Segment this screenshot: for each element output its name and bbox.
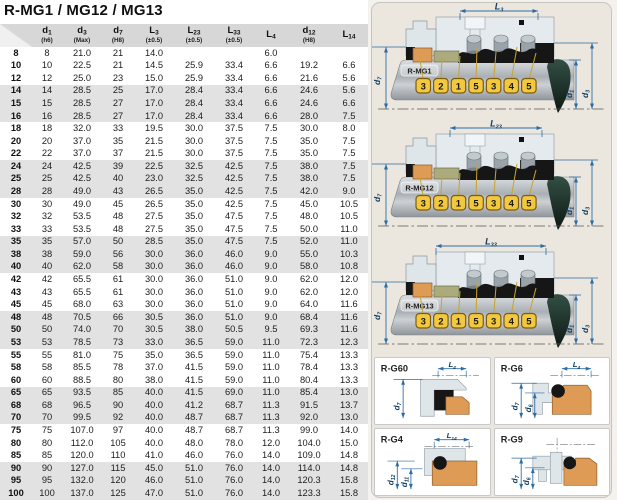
value-cell: 76.0 <box>214 462 254 475</box>
value-cell: 24.6 <box>288 97 330 110</box>
value-cell: 61 <box>102 286 134 299</box>
value-cell: 78 <box>102 361 134 374</box>
svg-text:L4: L4 <box>448 360 456 371</box>
value-cell: 75 <box>32 424 62 437</box>
table-row: 121225.02315.025.933.46.621.65.6 <box>0 72 368 85</box>
size-cell: 65 <box>0 387 32 400</box>
size-cell: 16 <box>0 110 32 123</box>
size-cell: 80 <box>0 437 32 450</box>
table-row: 424265.56130.036.051.09.062.012.0 <box>0 273 368 286</box>
size-cell: 28 <box>0 185 32 198</box>
size-cell: 24 <box>0 160 32 173</box>
svg-text:L4: L4 <box>572 360 580 371</box>
value-cell: 63 <box>102 299 134 312</box>
value-cell: 11.6 <box>330 324 368 337</box>
value-cell: 35.0 <box>174 198 214 211</box>
value-cell: 59.0 <box>214 374 254 387</box>
value-cell: 61 <box>102 273 134 286</box>
value-cell: 58.0 <box>288 261 330 274</box>
value-cell: 62.0 <box>62 261 102 274</box>
value-cell: 107.0 <box>62 424 102 437</box>
size-cell: 42 <box>0 273 32 286</box>
value-cell: 25 <box>102 85 134 98</box>
value-cell: 125 <box>102 487 134 500</box>
value-cell: 11.3 <box>254 424 288 437</box>
value-cell: 85 <box>102 387 134 400</box>
value-cell: 11.3 <box>254 399 288 412</box>
header-cell-d1: d1(h6) <box>32 24 62 47</box>
value-cell: 9.5 <box>254 324 288 337</box>
value-cell: 21 <box>102 47 134 60</box>
size-cell: 53 <box>0 336 32 349</box>
value-cell: 51.0 <box>214 311 254 324</box>
table-row: 151528.52717.028.433.46.624.66.6 <box>0 97 368 110</box>
value-cell: 55 <box>32 349 62 362</box>
value-cell: 62.0 <box>288 273 330 286</box>
value-cell: 7.5 <box>254 223 288 236</box>
diagram-r-g60: L4d7R-G60 <box>374 357 491 425</box>
value-cell: 41.5 <box>174 374 214 387</box>
table-row: 7575107.09740.048.768.711.399.014.0 <box>0 424 368 437</box>
value-cell: 97 <box>102 424 134 437</box>
size-cell: 55 <box>0 349 32 362</box>
svg-text:R-G6: R-G6 <box>500 364 522 374</box>
svg-text:3: 3 <box>421 317 426 328</box>
value-cell: 37.0 <box>134 361 174 374</box>
svg-text:L3: L3 <box>495 3 505 13</box>
table-row: 686896.59040.041.268.711.391.513.7 <box>0 399 368 412</box>
value-cell: 39 <box>102 160 134 173</box>
value-cell: 65.5 <box>62 286 102 299</box>
table-row: 454568.06330.036.051.09.064.011.6 <box>0 299 368 312</box>
svg-text:2: 2 <box>438 199 443 210</box>
value-cell: 9.0 <box>254 299 288 312</box>
size-cell: 40 <box>0 261 32 274</box>
value-cell: 45.0 <box>288 198 330 211</box>
value-cell: 28.5 <box>62 85 102 98</box>
table-row: 484870.56630.536.051.09.068.411.6 <box>0 311 368 324</box>
value-cell: 7.5 <box>254 185 288 198</box>
value-cell: 33.0 <box>134 336 174 349</box>
value-cell: 36.0 <box>174 299 214 312</box>
svg-text:d3: d3 <box>580 207 592 215</box>
value-cell: 59.0 <box>62 248 102 261</box>
value-cell: 65.5 <box>62 273 102 286</box>
value-cell: 11.0 <box>254 387 288 400</box>
spec-table-header: d1(h6)d3(Max)d7(H8)L3(±0.5)L23(±0.5)L33(… <box>0 24 368 47</box>
value-cell: 22.5 <box>62 60 102 73</box>
spec-table-body: 8821.02114.06.0101022.52114.525.933.46.6… <box>0 47 368 500</box>
table-row: 707099.59240.048.768.711.392.013.0 <box>0 412 368 425</box>
size-cell: 38 <box>0 248 32 261</box>
value-cell: 43 <box>102 185 134 198</box>
value-cell: 45 <box>102 198 134 211</box>
value-cell: 57.0 <box>62 236 102 249</box>
value-cell: 37.5 <box>214 122 254 135</box>
table-row: 323253.54827.535.047.57.548.010.5 <box>0 211 368 224</box>
value-cell: 58 <box>32 361 62 374</box>
value-cell: 11.6 <box>330 311 368 324</box>
svg-text:R-MG13: R-MG13 <box>405 302 433 311</box>
value-cell: 40.0 <box>134 399 174 412</box>
value-cell: 30.0 <box>134 248 174 261</box>
value-cell: 110 <box>102 450 134 463</box>
value-cell: 78.5 <box>62 336 102 349</box>
value-cell: 47.5 <box>214 236 254 249</box>
value-cell: 90 <box>32 462 62 475</box>
table-row: 161628.52717.028.433.46.628.07.5 <box>0 110 368 123</box>
value-cell: 30.0 <box>134 273 174 286</box>
value-cell: 13.0 <box>330 387 368 400</box>
value-cell: 120.0 <box>62 450 102 463</box>
value-cell: 35.0 <box>288 148 330 161</box>
value-cell: 6.6 <box>254 72 288 85</box>
value-cell: 40 <box>102 173 134 186</box>
table-row: 656593.58540.041.569.011.085.413.0 <box>0 387 368 400</box>
value-cell: 17.0 <box>134 85 174 98</box>
value-cell: 28.4 <box>174 85 214 98</box>
value-cell: 47.5 <box>214 211 254 224</box>
header-cell-d7: d7(H8) <box>102 24 134 47</box>
value-cell: 41.5 <box>174 387 214 400</box>
svg-text:d7: d7 <box>372 311 384 320</box>
value-cell: 127.0 <box>62 462 102 475</box>
value-cell: 33.4 <box>214 72 254 85</box>
value-cell: 9.0 <box>254 261 288 274</box>
value-cell: 28.4 <box>174 97 214 110</box>
value-cell: 7.5 <box>330 160 368 173</box>
size-cell: 70 <box>0 412 32 425</box>
table-row: 434365.56130.036.051.09.062.012.0 <box>0 286 368 299</box>
table-row: 141428.52517.028.433.46.624.65.6 <box>0 85 368 98</box>
header-cell-L3: L3(±0.5) <box>134 24 174 47</box>
value-cell: 7.5 <box>330 173 368 186</box>
value-cell: 7.5 <box>254 236 288 249</box>
value-cell: 9.0 <box>254 311 288 324</box>
value-cell: 11.0 <box>254 361 288 374</box>
value-cell: 21.5 <box>134 135 174 148</box>
table-row: 353557.05028.535.047.57.552.011.0 <box>0 236 368 249</box>
value-cell: 75 <box>102 349 134 362</box>
value-cell: 36.0 <box>174 248 214 261</box>
value-cell: 70.5 <box>62 311 102 324</box>
value-cell: 19.5 <box>134 122 174 135</box>
value-cell: 47.5 <box>214 223 254 236</box>
table-row: 100100137.012547.051.076.014.0123.315.8 <box>0 487 368 500</box>
svg-text:R-G60: R-G60 <box>381 364 408 374</box>
value-cell: 26.5 <box>134 198 174 211</box>
value-cell: 51.0 <box>174 475 214 488</box>
size-cell: 68 <box>0 399 32 412</box>
value-cell: 109.0 <box>288 450 330 463</box>
value-cell: 69.0 <box>214 387 254 400</box>
value-cell: 51.0 <box>214 286 254 299</box>
value-cell: 53.5 <box>62 223 102 236</box>
svg-text:3: 3 <box>491 82 496 93</box>
value-cell: 48.7 <box>174 424 214 437</box>
value-cell: 80 <box>32 437 62 450</box>
value-cell: 68.7 <box>214 412 254 425</box>
value-cell: 21.6 <box>288 72 330 85</box>
value-cell: 41.5 <box>174 361 214 374</box>
svg-text:R-MG1: R-MG1 <box>407 67 431 76</box>
table-row: 202037.03521.530.037.57.535.07.5 <box>0 135 368 148</box>
value-cell: 48 <box>32 311 62 324</box>
value-cell: 21.5 <box>134 148 174 161</box>
value-cell: 19.2 <box>288 60 330 73</box>
value-cell: 32.0 <box>62 122 102 135</box>
value-cell: 40.0 <box>134 387 174 400</box>
value-cell: 30.0 <box>134 299 174 312</box>
value-cell: 6.6 <box>254 60 288 73</box>
value-cell: 68.0 <box>62 299 102 312</box>
value-cell: 36.0 <box>174 286 214 299</box>
header-cell-d12: d12(H8) <box>288 24 330 47</box>
table-row: 535378.57333.036.559.011.072.312.3 <box>0 336 368 349</box>
value-cell: 60 <box>32 374 62 387</box>
value-cell: 7.5 <box>254 135 288 148</box>
value-cell: 16 <box>32 110 62 123</box>
value-cell: 123.3 <box>288 487 330 500</box>
value-cell: 51.0 <box>214 299 254 312</box>
value-cell: 9.0 <box>254 273 288 286</box>
value-cell: 14.0 <box>254 475 288 488</box>
value-cell: 12 <box>32 72 62 85</box>
size-cell: 85 <box>0 450 32 463</box>
value-cell: 7.5 <box>254 198 288 211</box>
value-cell: 28.4 <box>174 110 214 123</box>
value-cell: 13.0 <box>330 412 368 425</box>
value-cell: 49.0 <box>62 185 102 198</box>
size-cell: 8 <box>0 47 32 60</box>
size-cell: 14 <box>0 85 32 98</box>
value-cell: 7.5 <box>330 148 368 161</box>
value-cell: 64.0 <box>288 299 330 312</box>
value-cell: 37.5 <box>214 135 254 148</box>
diagram-r-mg1: R-MG1 3 2 1 5 3 4 5 L3d7d1d3 <box>370 3 614 119</box>
header-cell-d3: d3(Max) <box>62 24 102 47</box>
value-cell: 42.5 <box>214 185 254 198</box>
size-cell: 18 <box>0 122 32 135</box>
value-cell: 48 <box>102 223 134 236</box>
size-cell: 75 <box>0 424 32 437</box>
value-cell: 35.0 <box>174 223 214 236</box>
svg-text:d3: d3 <box>580 90 592 98</box>
header-cell-L4: L4 <box>254 24 288 47</box>
size-cell: 33 <box>0 223 32 236</box>
seat-diagrams-grid: L4d7R-G60 L4d7d6R-G6 L14d12d11R-G4 d7d6R… <box>374 357 610 496</box>
svg-text:2: 2 <box>438 82 443 93</box>
svg-text:d12: d12 <box>386 474 397 485</box>
value-cell: 76.0 <box>214 487 254 500</box>
value-cell: 26.5 <box>134 185 174 198</box>
table-row: 333353.54827.535.047.57.550.011.0 <box>0 223 368 236</box>
value-cell: 105 <box>102 437 134 450</box>
value-cell: 50 <box>102 236 134 249</box>
value-cell: 42.5 <box>214 160 254 173</box>
svg-text:3: 3 <box>491 199 496 210</box>
value-cell: 17.0 <box>134 97 174 110</box>
value-cell: 38.0 <box>288 173 330 186</box>
size-cell: 10 <box>0 60 32 73</box>
value-cell: 100 <box>32 487 62 500</box>
table-row: 555581.07535.036.559.011.075.413.3 <box>0 349 368 362</box>
value-cell: 30 <box>32 198 62 211</box>
size-cell: 22 <box>0 148 32 161</box>
value-cell: 37.0 <box>62 135 102 148</box>
value-cell: 9.0 <box>330 185 368 198</box>
svg-text:5: 5 <box>473 82 479 93</box>
value-cell: 59.0 <box>214 349 254 362</box>
size-cell: 48 <box>0 311 32 324</box>
value-cell: 38.0 <box>174 324 214 337</box>
table-row: 242442.53922.532.542.57.538.07.5 <box>0 160 368 173</box>
table-row: 8821.02114.06.0 <box>0 47 368 60</box>
table-row: 9090127.011545.051.076.014.0114.014.8 <box>0 462 368 475</box>
svg-text:R-G4: R-G4 <box>381 435 404 445</box>
value-cell: 12.0 <box>330 286 368 299</box>
svg-text:4: 4 <box>509 199 515 210</box>
value-cell: 88.5 <box>62 374 102 387</box>
value-cell: 33.4 <box>214 60 254 73</box>
value-cell: 49.0 <box>62 198 102 211</box>
value-cell: 12.3 <box>330 336 368 349</box>
value-cell: 14.0 <box>134 47 174 60</box>
size-cell: 30 <box>0 198 32 211</box>
svg-text:5: 5 <box>473 317 479 328</box>
value-cell: 92 <box>102 412 134 425</box>
value-cell: 42.5 <box>214 198 254 211</box>
value-cell: 14.0 <box>254 450 288 463</box>
value-cell: 76.0 <box>214 475 254 488</box>
value-cell: 14.0 <box>330 424 368 437</box>
svg-text:R-G9: R-G9 <box>500 435 522 445</box>
value-cell: 35.0 <box>288 135 330 148</box>
page-title: R-MG1 / MG12 / MG13 <box>4 2 163 19</box>
svg-text:4: 4 <box>509 317 515 328</box>
value-cell: 59.0 <box>214 361 254 374</box>
value-cell: 115 <box>102 462 134 475</box>
value-cell: 30.0 <box>174 148 214 161</box>
value-cell: 53.5 <box>62 211 102 224</box>
value-cell: 92.0 <box>288 412 330 425</box>
value-cell: 14.0 <box>254 487 288 500</box>
value-cell: 38.0 <box>288 160 330 173</box>
diagram-panel: R-MG1 3 2 1 5 3 4 5 L3d7d1d3 <box>368 0 617 500</box>
value-cell <box>288 47 330 60</box>
value-cell: 45 <box>32 299 62 312</box>
value-cell: 35.0 <box>134 349 174 362</box>
value-cell: 48.0 <box>174 437 214 450</box>
value-cell: 7.5 <box>330 110 368 123</box>
value-cell: 8.0 <box>330 122 368 135</box>
table-row: 505074.07030.538.050.59.569.311.6 <box>0 324 368 337</box>
value-cell: 14.8 <box>330 450 368 463</box>
table-row: 383859.05630.036.046.09.055.010.3 <box>0 248 368 261</box>
value-cell: 48.7 <box>174 412 214 425</box>
value-cell: 15.0 <box>134 72 174 85</box>
value-cell: 7.5 <box>330 135 368 148</box>
value-cell: 25.9 <box>174 60 214 73</box>
value-cell: 27.5 <box>134 211 174 224</box>
value-cell: 132.0 <box>62 475 102 488</box>
value-cell: 96.5 <box>62 399 102 412</box>
svg-text:5: 5 <box>526 82 532 93</box>
value-cell: 46.0 <box>134 475 174 488</box>
value-cell: 36.0 <box>174 261 214 274</box>
table-row: 585885.57837.041.559.011.078.413.3 <box>0 361 368 374</box>
table-row: 9595132.012046.051.076.014.0120.315.8 <box>0 475 368 488</box>
svg-text:1: 1 <box>456 317 462 328</box>
svg-text:d7: d7 <box>392 401 403 410</box>
value-cell: 40.0 <box>134 437 174 450</box>
value-cell: 30.0 <box>174 135 214 148</box>
value-cell: 50.0 <box>288 223 330 236</box>
value-cell: 28 <box>32 185 62 198</box>
value-cell: 95 <box>32 475 62 488</box>
value-cell: 7.5 <box>254 211 288 224</box>
value-cell: 76.0 <box>214 450 254 463</box>
diagram-r-mg13: R-MG13 3 2 1 5 3 4 5 L33d7d1d3 <box>370 238 614 354</box>
value-cell <box>330 47 368 60</box>
value-cell: 21 <box>102 60 134 73</box>
value-cell: 30.0 <box>174 122 214 135</box>
value-cell: 42.5 <box>62 160 102 173</box>
value-cell: 40.0 <box>134 424 174 437</box>
value-cell: 93.5 <box>62 387 102 400</box>
header-cell-L33: L33(±0.5) <box>214 24 254 47</box>
value-cell: 12.0 <box>330 273 368 286</box>
value-cell: 25.0 <box>62 72 102 85</box>
size-cell: 35 <box>0 236 32 249</box>
value-cell: 30.5 <box>134 311 174 324</box>
value-cell: 11.0 <box>330 236 368 249</box>
table-row: 282849.04326.535.042.57.542.09.0 <box>0 185 368 198</box>
value-cell: 33 <box>102 122 134 135</box>
value-cell: 32.5 <box>174 173 214 186</box>
svg-text:2: 2 <box>438 317 443 328</box>
value-cell: 7.5 <box>254 173 288 186</box>
svg-text:5: 5 <box>526 317 532 328</box>
value-cell: 40 <box>32 261 62 274</box>
value-cell: 112.0 <box>62 437 102 450</box>
value-cell: 12.0 <box>254 437 288 450</box>
value-cell: 91.5 <box>288 399 330 412</box>
value-cell: 20 <box>32 135 62 148</box>
value-cell: 14 <box>32 85 62 98</box>
value-cell: 47.0 <box>134 487 174 500</box>
value-cell: 38 <box>32 248 62 261</box>
value-cell: 6.0 <box>254 47 288 60</box>
value-cell: 35 <box>102 135 134 148</box>
value-cell: 58 <box>102 261 134 274</box>
catalog-page: R-MG1 / MG12 / MG13 d1(h6)d3(Max)d7(H8)L… <box>0 0 617 500</box>
value-cell: 56 <box>102 248 134 261</box>
value-cell: 10.3 <box>330 248 368 261</box>
value-cell: 30.0 <box>134 261 174 274</box>
value-cell: 70 <box>32 412 62 425</box>
size-cell: 100 <box>0 487 32 500</box>
value-cell: 9.0 <box>254 248 288 261</box>
size-cell: 43 <box>0 286 32 299</box>
value-cell: 35 <box>32 236 62 249</box>
value-cell: 28.0 <box>288 110 330 123</box>
value-cell: 36.0 <box>174 311 214 324</box>
value-cell: 48 <box>102 211 134 224</box>
value-cell: 28.5 <box>62 97 102 110</box>
svg-text:3: 3 <box>421 199 426 210</box>
size-cell: 25 <box>0 173 32 186</box>
